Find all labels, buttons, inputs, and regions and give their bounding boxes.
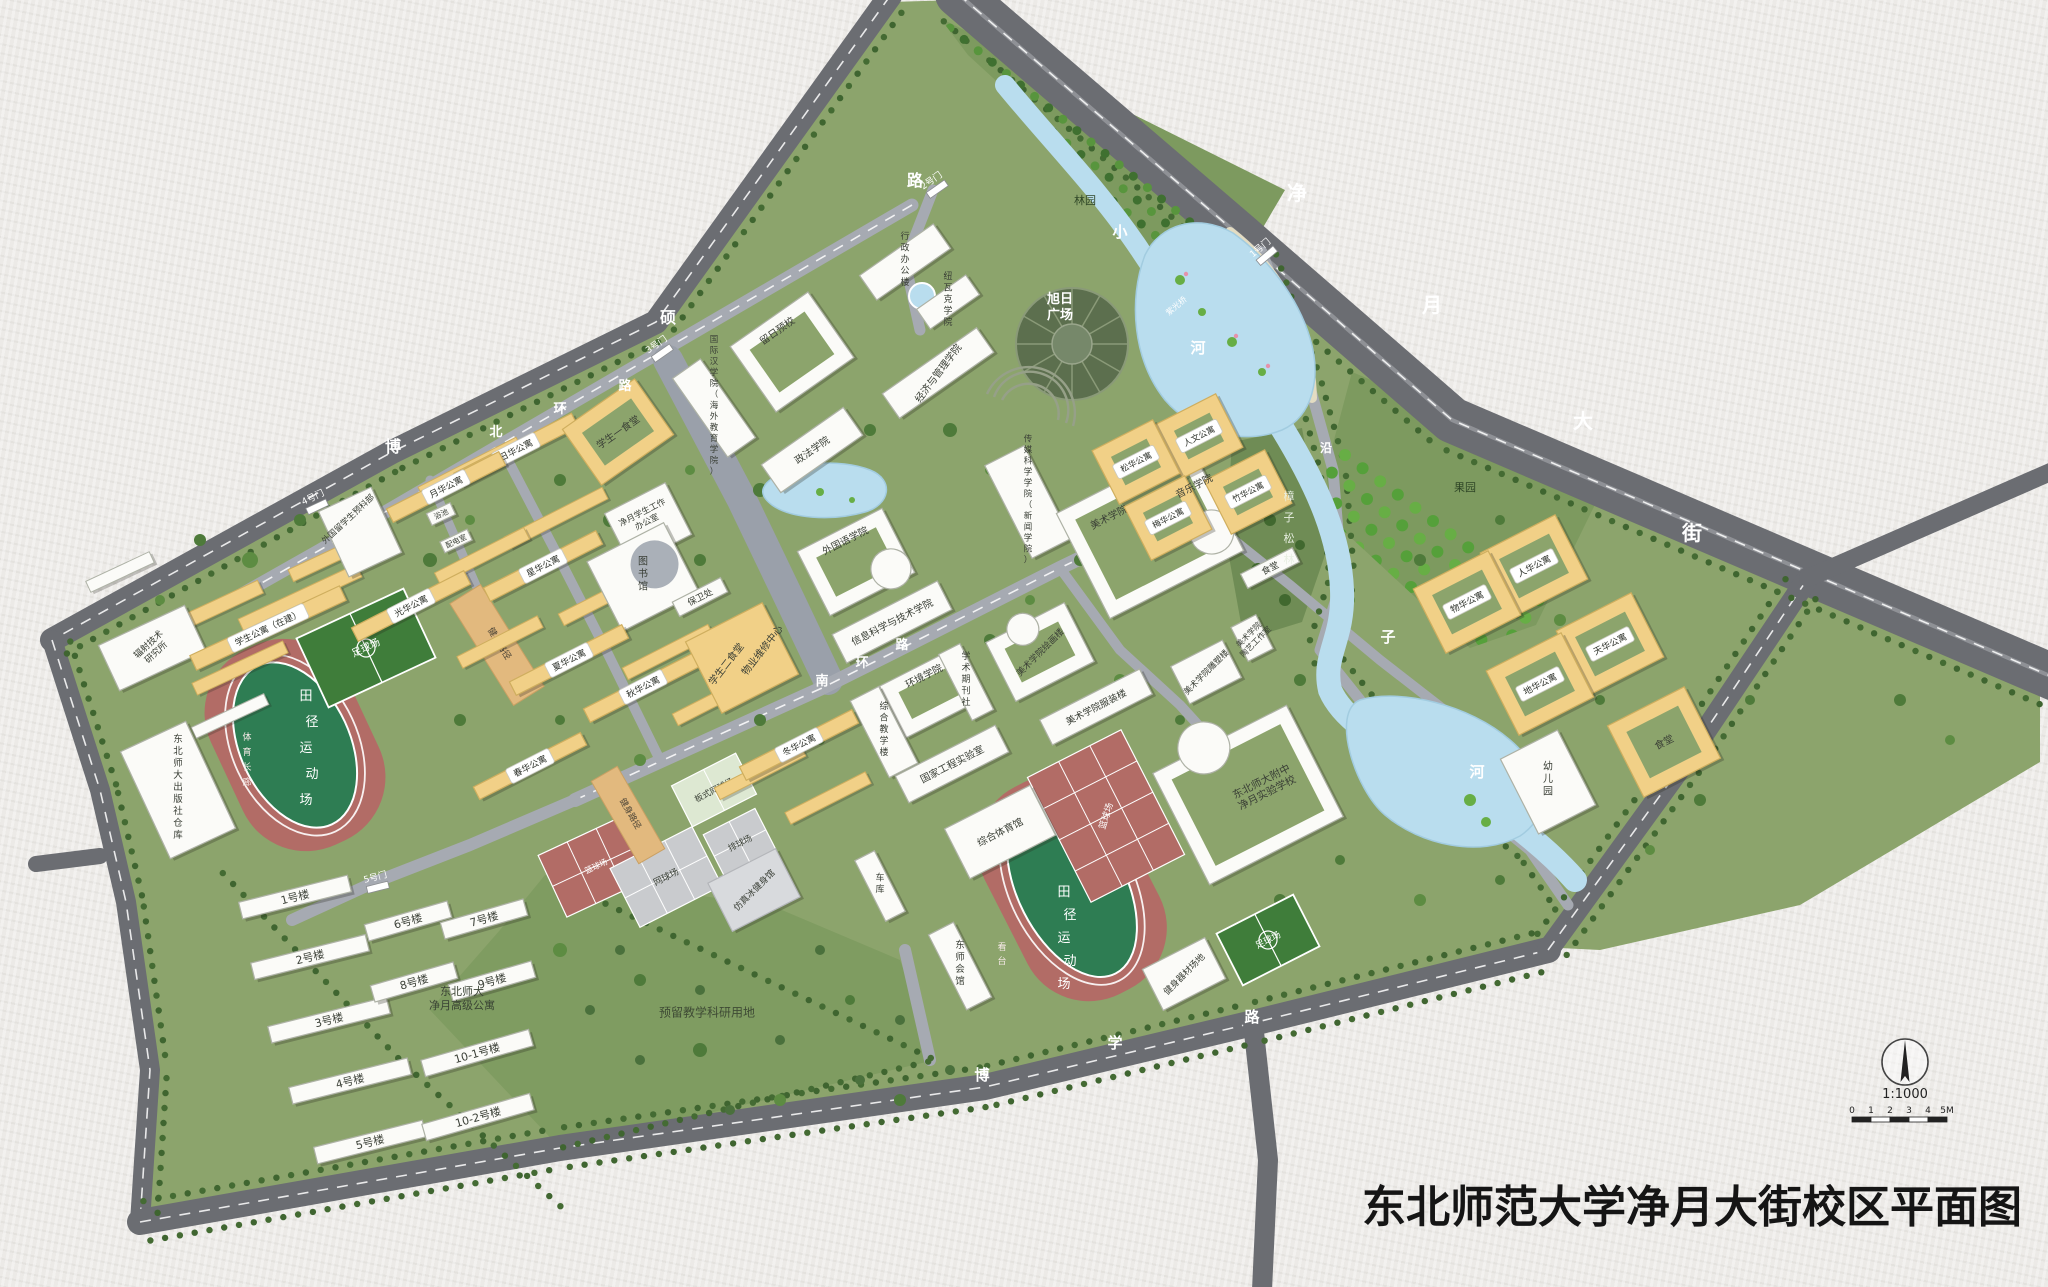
tree-clump [694, 554, 706, 566]
tree-clump [774, 1094, 786, 1106]
tree-row-jingyue-street [1940, 660, 1946, 666]
scale-tick-label: 1 [1868, 1106, 1874, 1116]
tree-row-boxue-road [1145, 1024, 1151, 1030]
tree-row-west-road [104, 753, 110, 759]
tree-row-boshuo-road [182, 585, 188, 591]
building-label-char: 馆 [955, 975, 965, 987]
tree-row-west-road [162, 1052, 168, 1058]
tree-row-boxue-road [155, 1195, 161, 1201]
tree-row-west-road [72, 653, 78, 659]
forest-linyuan-tree [1137, 220, 1146, 229]
tree-line-reserved-field-edge [914, 1048, 920, 1054]
building-label-char: 图 [638, 556, 648, 568]
area-label-char: 廊 [242, 776, 251, 788]
tree-row-boxue-road [391, 1154, 397, 1160]
orchard-guoyuan-tree [1374, 475, 1386, 487]
tree-row-boxue-road [1168, 1060, 1174, 1066]
tree-row-boshuo-road [837, 95, 843, 101]
tree-row-boshuo-road [615, 359, 621, 365]
tree-row-jingyue-street [1157, 204, 1163, 210]
tree-row-boxue-road [457, 1183, 463, 1189]
tree-row-riverside-road [1323, 395, 1329, 401]
tree-clump [1175, 715, 1185, 725]
tree-line-residential-west-fence [313, 968, 319, 974]
tree-row-boxue-road [1212, 1049, 1218, 1055]
tree-clump [943, 423, 957, 437]
tree-row-jingyue-street [1313, 339, 1319, 345]
tree-row-jingyue-street [1381, 398, 1387, 404]
area-label-line: 预留教学科研用地 [659, 1004, 755, 1019]
field-tree [775, 1035, 785, 1045]
tree-line-reserved-field-south [808, 1086, 814, 1092]
building-label-char: 媒 [1024, 446, 1033, 456]
tree-row-boxue-road [339, 1203, 345, 1209]
lily-pad [1464, 794, 1476, 806]
tree-row-boxue-road [421, 1148, 427, 1154]
tree-row-boxue-road [347, 1162, 353, 1168]
tree-row-boxue-road [902, 1075, 908, 1081]
field-tree [695, 985, 705, 995]
tree-row-riverside-road [1320, 594, 1326, 600]
tree-row-boxue-road [369, 1198, 375, 1204]
tree-row-boxue-road [843, 1084, 849, 1090]
tree-row-boxue-road [480, 1138, 486, 1144]
area-label-char: 看 [997, 941, 1006, 953]
road-name-char: 净 [1287, 181, 1307, 205]
tree-row-boshuo-road [628, 352, 634, 358]
tree-row-southeast-road [1687, 782, 1693, 788]
tree-row-boxue-road [1052, 1088, 1058, 1094]
tree-row-boxue-road [656, 1151, 662, 1157]
tree-row-southeast-road [1660, 818, 1666, 824]
tree-row-jingyue-street [1457, 453, 1463, 459]
tree-row-west-road [162, 1090, 168, 1096]
tree-row-boshuo-road [313, 512, 319, 518]
tree-row-boxue-road [1183, 1056, 1189, 1062]
tree-row-southeast-road [1699, 701, 1705, 707]
tree-row-jingyue-street [1623, 524, 1629, 530]
tree-row-jingyue-street [1995, 683, 2001, 689]
building-label-char: 版 [173, 793, 183, 805]
tree-row-boxue-road [849, 1123, 855, 1129]
tree-line-reserved-field-south [794, 1089, 800, 1095]
tree-row-jingyue-street [1392, 408, 1398, 414]
track-name-char: 径 [305, 715, 318, 730]
tree-row-west-road [67, 638, 73, 644]
tree-row-boxue-road [596, 1159, 602, 1165]
tree-row-boshuo-road [379, 476, 385, 482]
track-name-char: 运 [1057, 931, 1070, 946]
tree-row-boxue-road [258, 1177, 264, 1183]
tree-row-southeast-road [1741, 638, 1747, 644]
tree-row-riverside-road [1348, 533, 1354, 539]
tree-line-reserved-field-edge [684, 939, 690, 945]
tree-row-boxue-road [611, 1157, 617, 1163]
road-name-char: 街 [1681, 521, 1702, 545]
forest-linyuan-tree [1161, 218, 1170, 227]
tree-row-boxue-road [377, 1156, 383, 1162]
forest-linyuan-tree [960, 35, 969, 44]
tree-row-west-road [90, 710, 96, 716]
tree-row-west-road [156, 1180, 162, 1186]
orchard-guoyuan-tree [1326, 467, 1338, 479]
building-label-char: 会 [955, 963, 965, 975]
tree-row-west-road [153, 992, 159, 998]
orchard-guoyuan-tree [1392, 489, 1404, 501]
tree-row-southeast-road [1757, 613, 1763, 619]
tree-row-boshuo-road [819, 119, 825, 125]
tree-row-boxue-road [561, 1124, 567, 1130]
plaza-label: 旭日 [1046, 291, 1073, 307]
area-label-char: 体 [242, 731, 251, 743]
tree-row-riverside-road [1350, 668, 1356, 674]
tree-row-boshuo-road [274, 534, 280, 540]
tree-row-riverside-road [1349, 548, 1355, 554]
tree-row-west-road [154, 1210, 160, 1216]
tree-row-boshuo-road [750, 217, 756, 223]
tree-row-jingyue-street [1370, 388, 1376, 394]
building-label-char: 社 [173, 805, 183, 817]
building-label-char: 学 [710, 367, 719, 378]
tree-row-west-road [129, 848, 135, 854]
tree-row-boxue-road [709, 1103, 715, 1109]
tree-line-reserved-field-edge [860, 1023, 866, 1029]
building-label-char: 办 [900, 253, 909, 265]
area-label: 林园 [1074, 193, 1096, 207]
tree-clump [1335, 855, 1345, 865]
area-label-char: 松 [1284, 531, 1295, 545]
scale-bar-segment [1928, 1117, 1947, 1122]
tree-row-boxue-road [685, 1147, 691, 1153]
building-label-char: 学 [879, 735, 888, 747]
tree-row-west-road [158, 1022, 164, 1028]
tree-row-boshuo-road [872, 46, 878, 52]
area-label-char: 林 [1284, 552, 1295, 566]
orchard-guoyuan-tree [1339, 449, 1351, 461]
tree-row-west-road [160, 1037, 166, 1043]
area-label-char: 育 [242, 746, 251, 758]
tree-row-boxue-road [332, 1164, 338, 1170]
tree-line-reserved-field-south [677, 1117, 683, 1123]
tree-clump [685, 465, 695, 475]
building-label-char: 传 [1024, 434, 1033, 445]
tree-row-southeast-road [1561, 894, 1567, 900]
building-label-char: 刊 [961, 685, 970, 697]
tree-line-reserved-field-south [881, 1069, 887, 1075]
tree-row-riverside-road [1307, 637, 1313, 643]
tree-row-boshuo-road [784, 168, 790, 174]
tree-row-riverside-road [1343, 473, 1349, 479]
orchard-guoyuan-tree [1401, 550, 1413, 562]
tree-row-boxue-road [1266, 995, 1272, 1001]
tree-row-boxue-road [472, 1180, 478, 1186]
tree-row-boshuo-road [547, 392, 553, 398]
scale-bar-segment [1871, 1117, 1890, 1122]
map-scale-label: 1:1000 [1882, 1087, 1928, 1102]
tree-row-boxue-road [993, 1102, 999, 1108]
building-label-char: 学 [943, 305, 952, 317]
tree-row-jingyue-street [1719, 565, 1725, 571]
tree-line-reserved-field-edge [602, 901, 608, 907]
tree-row-west-road [122, 819, 128, 825]
tree-line-reserved-field-edge [806, 997, 812, 1003]
tree-line-residential-west-fence [535, 1183, 541, 1189]
tree-row-jingyue-street [1761, 583, 1767, 589]
building-label-char: 园 [1543, 786, 1553, 798]
field-tree [855, 1075, 865, 1085]
tree-row-jingyue-street [1324, 349, 1330, 355]
tree-clump [864, 424, 876, 436]
orchard-guoyuan-tree [1427, 515, 1439, 527]
tree-row-boxue-road [162, 1235, 168, 1241]
tree-row-boshuo-road [758, 205, 764, 211]
tree-row-boshuo-road [169, 592, 175, 598]
tree-row-boshuo-road [561, 385, 567, 391]
tree-row-boxue-road [310, 1209, 316, 1215]
building-label-char: 东 [955, 939, 965, 951]
scale-bar-segment [1909, 1117, 1928, 1122]
tree-line-residential-west-fence [524, 1173, 530, 1179]
tree-row-boshuo-road [741, 229, 747, 235]
tree-row-boxue-road [605, 1118, 611, 1124]
tree-row-west-road [163, 1075, 169, 1081]
tree-row-riverside-road [1345, 503, 1351, 509]
tree-row-boshuo-road [480, 425, 486, 431]
tree-row-boxue-road [864, 1121, 870, 1127]
building-label-char: 外 [710, 411, 719, 422]
tree-row-boxue-road [206, 1227, 212, 1233]
building-label-char: 闻 [1024, 523, 1033, 533]
tree-row-west-road [76, 667, 82, 673]
tree-row-jingyue-street [1857, 624, 1863, 630]
tree-row-boxue-road [1276, 1034, 1282, 1040]
tree-row-boxue-road [428, 1188, 434, 1194]
track-name-char: 径 [1063, 908, 1076, 923]
river-name-char: 小 [1112, 223, 1127, 241]
tree-row-boxue-road [888, 1077, 894, 1083]
tree-line-residential-west-fence [220, 870, 226, 876]
tree-row-west-road [99, 738, 105, 744]
orchard-guoyuan-tree [1445, 528, 1457, 540]
tree-line-reserved-field-edge [833, 1010, 839, 1016]
tree-clump [465, 515, 475, 525]
area-label-line: 东北师大 [440, 984, 484, 998]
tree-row-riverside-road [1311, 623, 1317, 629]
tree-row-jingyue-street [1540, 488, 1546, 494]
building-label-char: 仓 [173, 817, 183, 829]
tree-row-boxue-road [450, 1143, 456, 1149]
tree-row-west-road [160, 1120, 166, 1126]
forest-linyuan-tree [1119, 184, 1128, 193]
tree-line-residential-west-fence [513, 1163, 519, 1169]
tree-row-boxue-road [620, 1116, 626, 1122]
tree-line-reserved-field-edge [765, 978, 771, 984]
tree-row-boshuo-road [467, 432, 473, 438]
forest-linyuan-tree [1058, 115, 1067, 124]
track-name-char: 动 [305, 767, 318, 782]
tree-row-boxue-road [1412, 959, 1418, 965]
tree-row-boxue-road [1480, 984, 1486, 990]
tree-line-residential-west-fence [374, 1033, 380, 1039]
building-label-char: 院 [943, 316, 952, 328]
road-name-char: 博 [385, 437, 401, 456]
tree-row-boxue-road [1509, 976, 1515, 982]
tree-row-boxue-road [531, 1170, 537, 1176]
tree-row-boxue-road [170, 1193, 176, 1199]
tree-row-boxue-road [517, 1172, 523, 1178]
scale-tick-label: 4 [1925, 1106, 1931, 1116]
campus-map-page: 足球场足球场篮球场篮球场网球场排球场板式网球场健身路径健身路径田径运动场田径运动… [0, 0, 2048, 1287]
tree-row-boshuo-road [793, 156, 799, 162]
tree-line-residential-west-fence [271, 924, 277, 930]
tree-row-jingyue-street [2023, 695, 2029, 701]
building-label-char: 院 [1024, 489, 1033, 500]
forest-linyuan-tree [1044, 103, 1053, 112]
tree-row-southeast-road [1716, 676, 1722, 682]
tree-row-boxue-road [398, 1193, 404, 1199]
orchard-guoyuan-tree [1409, 502, 1421, 514]
tree-row-southeast-road [1774, 589, 1780, 595]
tree-row-west-road [139, 892, 145, 898]
tree-row-boxue-road [1174, 1017, 1180, 1023]
tree-row-boxue-road [1013, 1056, 1019, 1062]
tree-row-west-road [125, 834, 131, 840]
tree-row-boxue-road [1296, 988, 1302, 994]
tree-row-boxue-road [406, 1151, 412, 1157]
tree-row-boxue-road [873, 1079, 879, 1085]
tree-row-boxue-road [1538, 969, 1544, 975]
tree-line-reserved-field-edge [819, 1003, 825, 1009]
tree-line-residential-west-fence [557, 1203, 563, 1209]
tree-row-boxue-road [650, 1111, 656, 1117]
tree-row-boxue-road [1072, 1042, 1078, 1048]
building-label-char: 楼 [900, 276, 909, 288]
building-label-char: 学 [1024, 533, 1033, 544]
plaza-center [1052, 324, 1092, 364]
tree-row-jingyue-street [1443, 447, 1449, 453]
tree-row-southeast-road [1782, 576, 1788, 582]
tree-row-southeast-road [1762, 671, 1768, 677]
tree-clump [1294, 674, 1306, 686]
road-name-char: 硕 [660, 308, 676, 327]
lotus-flower [1184, 272, 1188, 276]
forest-linyuan-tree [1147, 207, 1156, 216]
tree-row-boxue-road [140, 1198, 146, 1204]
building-label-char: 科 [1024, 456, 1033, 467]
tree-row-boxue-road [546, 1167, 552, 1173]
tree-row-riverside-road [1529, 872, 1535, 878]
building-label-char: 楼 [879, 746, 888, 758]
river-name-char: 子 [1380, 628, 1395, 646]
forest-linyuan-tree [1091, 161, 1100, 170]
tree-clump [194, 534, 206, 546]
tree-line-reserved-field-south [925, 1058, 931, 1064]
field-tree [815, 945, 825, 955]
tree-row-boshuo-road [706, 278, 712, 284]
tree-row-jingyue-street [941, 18, 947, 24]
road-name-char: 环 [553, 402, 566, 417]
campus-map: 足球场足球场篮球场篮球场网球场排球场板式网球场健身路径健身路径田径运动场田径运动… [0, 0, 2048, 1287]
tree-clump [754, 714, 766, 726]
tree-row-boxue-road [834, 1125, 840, 1131]
tree-row-jingyue-street [1426, 437, 1432, 443]
tree-row-boxue-road [635, 1113, 641, 1119]
tree-row-boshuo-road [715, 266, 721, 272]
tree-row-boxue-road [1281, 992, 1287, 998]
tree-row-jingyue-street [1347, 368, 1353, 374]
tree-clump [634, 974, 646, 986]
tree-row-southeast-road [1590, 915, 1596, 921]
tree-row-boxue-road [1349, 1016, 1355, 1022]
tree-row-jingyue-street [1899, 642, 1905, 648]
tree-clump [1025, 595, 1035, 605]
tree-row-boxue-road [1022, 1095, 1028, 1101]
tree-row-boxue-road [1232, 1004, 1238, 1010]
tree-row-boshuo-road [208, 570, 214, 576]
forest-linyuan-tree [988, 58, 997, 67]
tree-row-boxue-road [1057, 1045, 1063, 1051]
scale-tick-label: 3 [1906, 1106, 1912, 1116]
tree-line-residential-west-fence [333, 990, 339, 996]
tree-row-jingyue-street [1788, 595, 1794, 601]
tree-row-southeast-road [1534, 931, 1540, 937]
lily-pad [1258, 368, 1266, 376]
tree-row-jingyue-street [1637, 530, 1643, 536]
building-label-char: 幼 [1543, 760, 1553, 773]
tree-row-jingyue-street [2009, 689, 2015, 695]
building-label-char: 院 [710, 378, 719, 389]
tree-row-southeast-road [1625, 867, 1631, 873]
road-name-char: 环 [855, 656, 868, 671]
field-tree [635, 1055, 645, 1065]
scale-bar: 012345M [1849, 1106, 1954, 1122]
building-label-char: 师 [955, 951, 965, 963]
tree-row-boshuo-road [854, 71, 860, 77]
tree-row-jingyue-street [1123, 174, 1129, 180]
tree-line-reserved-field-edge [670, 933, 676, 939]
tree-row-riverside-road [1331, 424, 1337, 430]
tree-clump [1495, 515, 1505, 525]
tree-row-southeast-road [1616, 879, 1622, 885]
pine-clump [1279, 594, 1291, 606]
tree-row-west-road [151, 978, 157, 984]
road-name-char: 路 [1244, 1008, 1260, 1026]
tree-row-boxue-road [1514, 934, 1520, 940]
tree-row-west-road [145, 933, 151, 939]
tree-row-boshuo-road [413, 458, 419, 464]
tree-line-reserved-field-south [691, 1113, 697, 1119]
tree-row-boxue-road [524, 1130, 530, 1136]
tree-row-southeast-road [1596, 846, 1602, 852]
building-label-char: 库 [173, 829, 183, 841]
tree-line-residential-west-fence [502, 1153, 508, 1159]
scale-tick-label: 5M [1940, 1106, 1954, 1116]
tree-row-boshuo-road [802, 144, 808, 150]
area-label: 果园 [1454, 481, 1476, 494]
tree-row-boxue-road [465, 1141, 471, 1147]
building-label-char: 出 [173, 781, 183, 793]
tree-row-west-road [157, 1165, 163, 1171]
tree-clump [1894, 694, 1906, 706]
area-label-char: 长 [242, 761, 251, 773]
tree-row-boshuo-road [234, 556, 240, 562]
tree-row-west-road [141, 903, 147, 909]
tree-row-boshuo-road [811, 131, 817, 137]
tree-row-southeast-road [1564, 952, 1570, 958]
tree-row-southeast-road [1614, 821, 1620, 827]
track-name-char: 场 [299, 793, 312, 808]
tree-line-reserved-field-edge [711, 952, 717, 958]
